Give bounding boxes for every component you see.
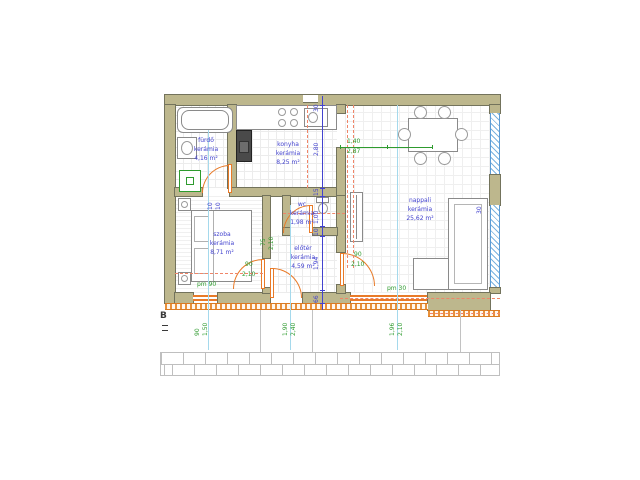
dim-chain-1: 2,80	[314, 134, 320, 156]
witness-line-1	[260, 310, 261, 352]
paving-row	[161, 364, 499, 376]
wall-konyha-nappali-a	[337, 105, 345, 113]
room-material: kerámia	[278, 253, 328, 262]
dim-szoba-door-h: 2,10	[242, 272, 255, 278]
floorplan-canvas: 30 2,80 15 1,00 10 1,94 66 10 10 30 1,40…	[0, 0, 640, 480]
sofa-cushion	[454, 204, 482, 284]
dim-tick	[320, 236, 325, 237]
dashline-vertical-2	[353, 105, 354, 268]
dim-szoba-door-w: 90	[245, 262, 253, 268]
dim-table-a: 1,40	[347, 139, 360, 145]
wall-horizontal-mid	[230, 188, 345, 196]
stove-burner-3	[278, 119, 286, 127]
dim-chain-2: 15	[314, 184, 320, 196]
bathtub-inner	[181, 110, 229, 130]
dim-right-wall: 30	[477, 200, 483, 214]
refrigerator-inner	[239, 141, 249, 153]
door-leaf-furdo	[228, 164, 232, 193]
room-name: szoba	[197, 230, 247, 239]
dim-tick	[320, 105, 325, 106]
wall-nappali-left-b	[337, 285, 345, 293]
room-material: kerámia	[197, 239, 247, 248]
wall-right-seg3	[490, 288, 500, 293]
dashline-window-right	[340, 298, 500, 299]
wall-right-seg1	[490, 105, 500, 113]
wall-right-seg2	[490, 175, 500, 205]
chair-1	[414, 106, 427, 119]
chair-2	[438, 106, 451, 119]
chair-5	[398, 128, 411, 141]
dim-chain-6: 66	[314, 290, 320, 303]
room-area: 8,25 m²	[263, 158, 313, 167]
section-marker-tick2	[162, 330, 168, 331]
wall-konyha-nappali-b	[337, 148, 345, 196]
dim-tick-green	[340, 145, 341, 149]
label-room-konyha: konyha kerámia 8,25 m²	[263, 140, 313, 167]
stove-burner-1	[278, 108, 286, 116]
window-right-upper	[490, 113, 500, 175]
radiator-line	[356, 195, 357, 239]
room-name: nappali	[395, 196, 445, 205]
stove-burner-4	[290, 119, 298, 127]
room-name: fürdő	[181, 136, 231, 145]
chair-6	[455, 128, 468, 141]
dim-tick	[320, 226, 325, 227]
dim-chain-line	[322, 96, 323, 310]
witness-line-2	[312, 310, 313, 352]
paving-strip	[160, 352, 500, 376]
lamp-top	[181, 201, 188, 208]
room-name: előtér	[278, 244, 328, 253]
window-bottom-left	[193, 295, 218, 301]
room-name: konyha	[263, 140, 313, 149]
door-leaf-entrance	[270, 268, 274, 298]
dim-tick	[320, 303, 325, 304]
room-area: 4,59 m²	[278, 262, 328, 271]
room-name: wc	[284, 200, 320, 209]
section-marker: B	[160, 311, 167, 321]
dim-bottom-1b: 2,40	[291, 314, 297, 336]
label-parapet-left: pm 90	[197, 282, 216, 288]
label-room-eloter: előtér kerámia 4,59 m²	[278, 244, 328, 271]
dim-nappali-door-h: 2,10	[351, 262, 364, 268]
dim-nappali-door-w: 90	[354, 252, 362, 258]
label-room-furdo: fürdő kerámia 4,16 m²	[181, 136, 231, 163]
dim-bottom-2b: 2,10	[398, 314, 404, 336]
door-leaf-nappali	[340, 253, 344, 286]
stove-burner-2	[290, 108, 298, 116]
lamp-bottom	[181, 275, 188, 282]
dim-bottom-0b: 1,50	[203, 314, 209, 336]
wall-left	[165, 105, 175, 303]
dim-bottom-2a: 1,96	[390, 314, 396, 336]
label-parapet-right: pm 30	[387, 286, 406, 292]
dim-szoba-wall-1: 10	[216, 198, 222, 210]
witness-line-3	[460, 310, 461, 352]
wall-top	[165, 95, 500, 105]
wall-bottom-seg4	[428, 293, 490, 310]
section-marker-tick1	[162, 325, 168, 326]
wall-bottom-seg2	[218, 293, 270, 303]
dim-tick	[320, 188, 325, 189]
window-right-lower	[490, 205, 500, 288]
dim-bottom-1a: 1,90	[283, 314, 289, 336]
label-room-nappali: nappali kerámia 25,62 m²	[395, 196, 445, 223]
dim-tick	[320, 196, 325, 197]
door-leaf-szoba	[261, 259, 265, 289]
dashline-below-wall	[430, 313, 500, 314]
dim-tick-green	[432, 145, 433, 149]
label-room-szoba: szoba kerámia 8,71 m²	[197, 230, 247, 257]
chair-4	[438, 152, 451, 165]
washing-machine-inner	[186, 177, 194, 185]
room-area: 1,98 m²	[284, 218, 320, 227]
room-area: 4,16 m²	[181, 154, 231, 163]
sofa-seat	[413, 258, 449, 290]
wall-nappali-left-a	[337, 196, 345, 252]
room-material: kerámia	[181, 145, 231, 154]
dim-bottom-0a: 90	[195, 314, 201, 336]
dim-szoba-wall-0: 10	[208, 198, 214, 210]
chair-3	[414, 152, 427, 165]
dim-tick	[320, 290, 325, 291]
dim-table-b: 2,87	[347, 149, 360, 155]
kitchen-sink-bowl	[308, 112, 318, 123]
room-material: kerámia	[263, 149, 313, 158]
dim-wc-door-h: 2,10	[269, 230, 275, 250]
insulation-band	[165, 303, 428, 310]
room-material: kerámia	[284, 209, 320, 218]
dashline-vertical-1	[347, 105, 348, 268]
label-room-wc: wc kerámia 1,98 m²	[284, 200, 320, 227]
dim-chain-0: 30	[314, 96, 320, 112]
room-area: 25,62 m²	[395, 214, 445, 223]
room-area: 8,71 m²	[197, 248, 247, 257]
dim-tick-green	[387, 145, 388, 149]
dim-wc-door-w: 75	[261, 232, 267, 246]
wall-bottom-seg1	[175, 293, 193, 303]
room-material: kerámia	[395, 205, 445, 214]
